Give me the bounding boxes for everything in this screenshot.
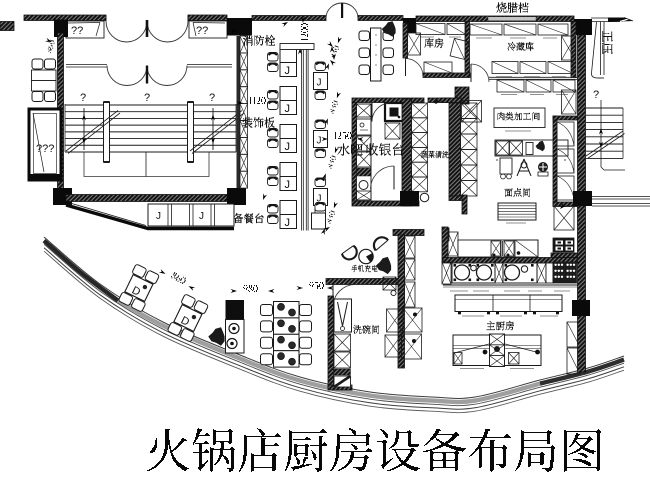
svg-text:J: J <box>285 217 291 229</box>
svg-text:J: J <box>317 136 322 147</box>
svg-text:J: J <box>285 141 291 153</box>
svg-text:J: J <box>199 211 204 222</box>
svg-text:J: J <box>156 211 161 222</box>
svg-text:J: J <box>285 65 291 77</box>
svg-text:??: ?? <box>71 25 83 37</box>
svg-text:??: ?? <box>196 25 208 37</box>
svg-text:???: ??? <box>36 143 54 155</box>
svg-text:J: J <box>285 179 291 191</box>
svg-text:J: J <box>285 103 291 115</box>
svg-text:?: ? <box>144 92 150 104</box>
svg-text:J: J <box>317 78 322 89</box>
svg-text:?: ? <box>209 92 215 104</box>
svg-text:?: ? <box>80 92 86 104</box>
svg-text:?: ? <box>593 89 599 101</box>
